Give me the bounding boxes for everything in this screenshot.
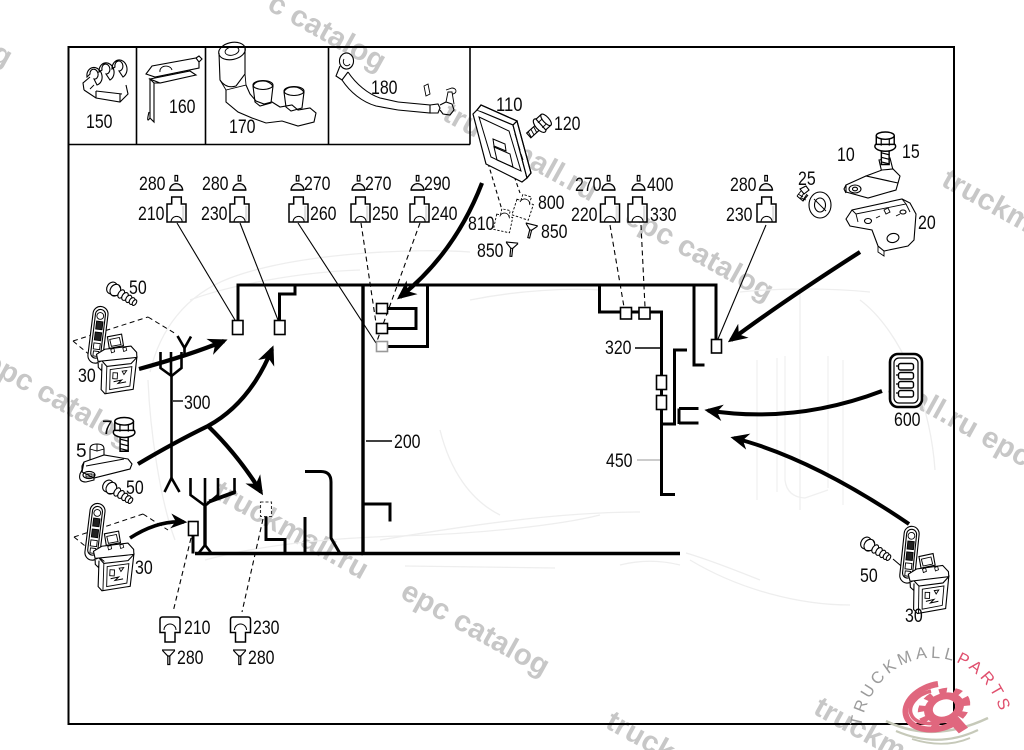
svg-text:280: 280 (139, 174, 166, 195)
svg-text:600: 600 (894, 410, 921, 431)
svg-text:30: 30 (135, 558, 153, 579)
svg-text:280: 280 (248, 648, 275, 669)
svg-text:200: 200 (394, 432, 421, 453)
svg-text:280: 280 (177, 648, 204, 669)
svg-text:50: 50 (860, 566, 878, 587)
svg-text:280: 280 (730, 175, 757, 196)
svg-text:260: 260 (310, 204, 337, 225)
svg-text:330: 330 (650, 205, 677, 226)
svg-text:110: 110 (496, 95, 523, 116)
svg-text:800: 800 (538, 193, 565, 214)
svg-text:270: 270 (304, 174, 331, 195)
svg-text:15: 15 (902, 142, 920, 163)
svg-text:290: 290 (424, 174, 451, 195)
svg-text:30: 30 (78, 366, 96, 387)
svg-text:400: 400 (647, 175, 674, 196)
svg-text:170: 170 (229, 117, 256, 138)
svg-text:30: 30 (905, 606, 923, 627)
svg-text:270: 270 (365, 174, 392, 195)
svg-text:230: 230 (201, 204, 228, 225)
svg-text:810: 810 (468, 214, 495, 235)
svg-text:150: 150 (86, 112, 113, 133)
svg-text:230: 230 (253, 618, 280, 639)
svg-text:270: 270 (575, 175, 602, 196)
svg-text:210: 210 (138, 204, 165, 225)
svg-text:25: 25 (798, 169, 816, 190)
svg-text:160: 160 (169, 97, 196, 118)
svg-text:850: 850 (477, 241, 504, 262)
svg-text:120: 120 (554, 114, 581, 135)
svg-text:320: 320 (605, 338, 632, 359)
svg-text:10: 10 (837, 145, 855, 166)
svg-text:230: 230 (726, 205, 753, 226)
svg-text:50: 50 (129, 278, 147, 299)
svg-text:850: 850 (541, 222, 568, 243)
svg-text:50: 50 (126, 478, 144, 499)
svg-text:240: 240 (431, 204, 458, 225)
svg-text:450: 450 (606, 451, 633, 472)
svg-text:220: 220 (571, 205, 598, 226)
svg-text:180: 180 (371, 78, 398, 99)
svg-text:5: 5 (76, 441, 87, 462)
svg-text:7: 7 (102, 418, 113, 439)
svg-text:210: 210 (184, 618, 211, 639)
svg-text:250: 250 (372, 204, 399, 225)
svg-text:20: 20 (918, 213, 936, 234)
svg-text:280: 280 (202, 174, 229, 195)
svg-text:300: 300 (184, 393, 211, 414)
